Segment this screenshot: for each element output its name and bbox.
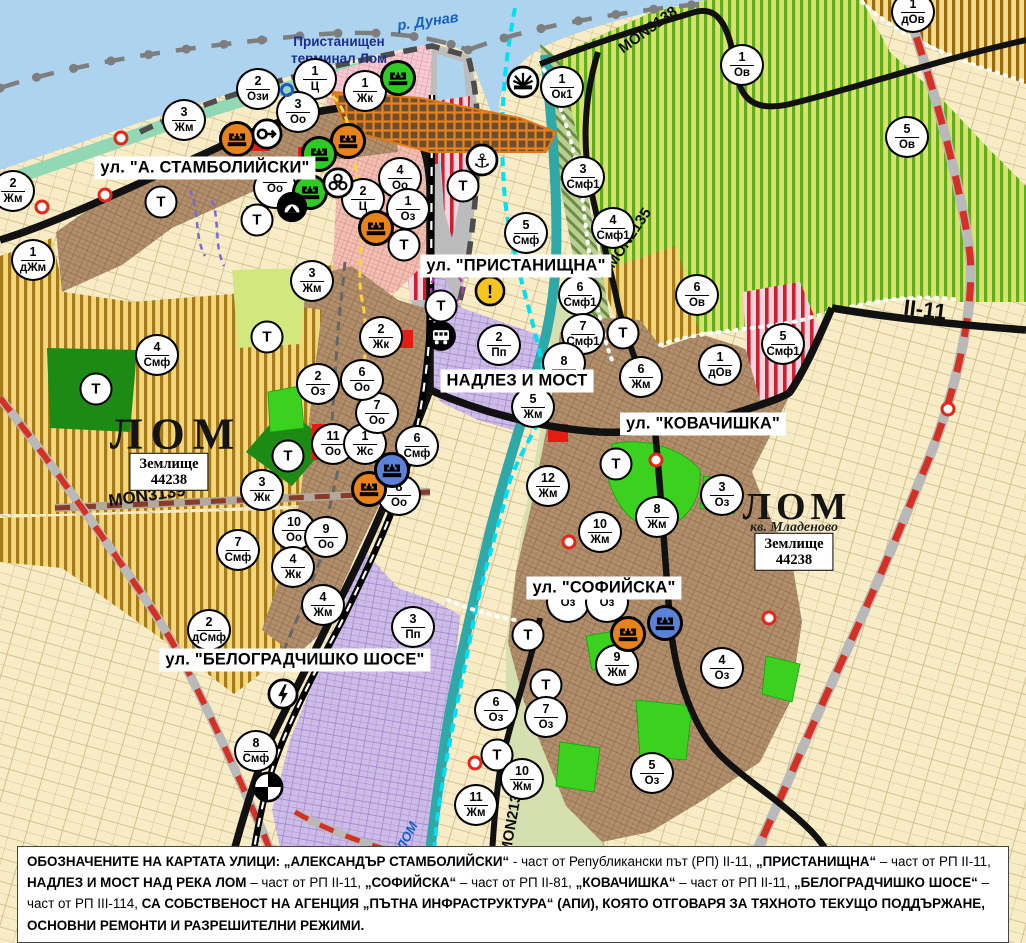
- zone-marker-number: 2: [315, 370, 322, 383]
- zone-marker-code: Ов: [689, 298, 705, 310]
- zone-marker: 2дСмф: [187, 609, 231, 651]
- zone-marker-divider: [387, 495, 411, 496]
- zone-marker-number: 7: [580, 320, 587, 333]
- red-dot-marker: [762, 611, 777, 626]
- zone-marker-divider: [300, 281, 324, 282]
- zone-marker-number: 8: [253, 737, 260, 750]
- zone-marker-divider: [306, 384, 330, 385]
- zone-marker-divider: [405, 446, 429, 447]
- zone-marker: 4Жм: [301, 584, 345, 626]
- zone-marker-code: Жк: [254, 493, 270, 505]
- terrain-marker: Т: [600, 448, 633, 481]
- zone-marker-divider: [464, 805, 488, 806]
- zone-marker-number: 11: [326, 430, 339, 443]
- zone-marker: 1Ов: [720, 44, 764, 86]
- zone-marker-divider: [350, 380, 374, 381]
- zone-marker-number: 3: [410, 613, 417, 626]
- zone-marker-divider: [571, 177, 595, 178]
- zone-marker-code: Ози: [247, 92, 269, 104]
- zone-marker-number: 7: [543, 703, 550, 716]
- zone-marker-number: 4: [154, 341, 161, 354]
- zone-marker: 5Смф: [504, 212, 548, 254]
- anchor-icon: ⚓: [465, 143, 499, 177]
- zone-marker-number: 6: [638, 363, 645, 376]
- power-station-icon: [267, 678, 299, 710]
- zone-marker-number: 1: [362, 77, 369, 90]
- zone-marker-divider: [484, 710, 508, 711]
- zone-marker-code: Смф: [513, 236, 540, 248]
- zone-marker-divider: [710, 495, 734, 496]
- zone-marker: 4Оз: [700, 647, 744, 689]
- zone-marker: 10Жм: [578, 511, 622, 553]
- zone-marker-code: Ц: [311, 82, 319, 94]
- legend-note-segment: „ПРИСТАНИЩНА“: [756, 854, 876, 869]
- zone-marker-code: Оо: [369, 416, 385, 428]
- zone-marker-number: 6: [493, 696, 500, 709]
- zone-marker-divider: [365, 413, 389, 414]
- zone-marker-divider: [286, 112, 310, 113]
- zone-marker: 3Пп: [391, 606, 435, 648]
- legend-note-segment: – част от РП II-81,: [456, 875, 575, 890]
- zone-marker: 6Смф1: [558, 274, 602, 316]
- zone-marker-code: Оо: [391, 498, 407, 510]
- zone-marker: 8Жм: [635, 496, 679, 538]
- street-label-stamboliyski: ул. "А. СТАМБОЛИЙСКИ": [94, 157, 315, 180]
- legend-note: ОБОЗНАЧЕНИТЕ НА КАРТАТА УЛИЦИ: „АЛЕКСАНД…: [17, 846, 1009, 943]
- zone-marker-divider: [1, 191, 25, 192]
- zone-marker-number: 5: [904, 123, 911, 136]
- zone-marker-code: Жм: [4, 194, 23, 206]
- terrain-marker: Т: [425, 290, 458, 323]
- zone-marker-number: 4: [610, 214, 617, 227]
- zone-marker-code: Оз: [311, 387, 326, 399]
- heritage-monument-icon: [647, 605, 684, 642]
- legend-note-segment: „СОФИЙСКА“: [365, 875, 456, 890]
- road-number-ii-11: II-11: [902, 294, 948, 325]
- zone-marker: 3Жм: [290, 260, 334, 302]
- zone-marker-divider: [21, 260, 45, 261]
- zone-marker-number: 5: [780, 330, 787, 343]
- zone-marker-divider: [710, 668, 734, 669]
- zone-marker-number: 11: [469, 791, 482, 804]
- port-terminal-line1: Пристанищен: [293, 34, 384, 49]
- zone-marker-code: Оз: [489, 713, 504, 725]
- landplot-box-west: Землище 44238: [129, 453, 208, 491]
- street-label-sofiyska: ул. "СОФИЙСКА": [526, 577, 681, 600]
- zone-marker-divider: [685, 295, 709, 296]
- terrain-marker: Т: [607, 317, 640, 350]
- zone-marker-number: 2: [206, 616, 213, 629]
- zone-marker-number: 1: [559, 73, 566, 86]
- zone-marker: 6Жм: [619, 356, 663, 398]
- zone-marker-code: Пп: [491, 348, 506, 360]
- zone-marker: 3Оз: [700, 474, 744, 516]
- zone-marker-code: Ов: [899, 140, 915, 152]
- zone-marker: 6Оз: [474, 689, 518, 731]
- trefoil-monument-icon: [322, 167, 354, 199]
- zone-marker-number: 2: [10, 177, 17, 190]
- zone-marker-code: Жм: [314, 608, 333, 620]
- zone-marker-code: Смф: [243, 754, 270, 766]
- zone-marker-number: 6: [414, 432, 421, 445]
- zone-marker: 7Смф: [216, 529, 260, 571]
- legend-note-segment: „БЕЛОГРАДЧИШКО ШОСЕ“: [794, 875, 978, 890]
- zone-marker-number: 5: [649, 759, 656, 772]
- zone-marker-number: 6: [359, 366, 366, 379]
- zone-marker-divider: [487, 345, 511, 346]
- zone-marker-number: 6: [694, 281, 701, 294]
- zone-marker-number: 3: [580, 163, 587, 176]
- zone-marker-number: 5: [530, 393, 537, 406]
- zone-marker-divider: [514, 233, 538, 234]
- zone-marker-number: 1: [717, 351, 724, 364]
- zone-marker-number: 3: [295, 98, 302, 111]
- red-dot-marker: [468, 756, 483, 771]
- zone-marker: 5Смф1: [761, 323, 805, 365]
- zone-marker-number: 3: [719, 481, 726, 494]
- zone-marker-divider: [771, 344, 795, 345]
- zone-marker-divider: [172, 120, 196, 121]
- zone-marker-divider: [311, 605, 335, 606]
- zone-marker: 11Жм: [454, 784, 498, 826]
- zone-marker: 6Ов: [675, 274, 719, 316]
- landplot-code: 44238: [776, 552, 812, 568]
- zone-marker-code: Смф1: [563, 298, 596, 310]
- legend-note-segment: НАДЛЕЗ И МОСТ НАД РЕКА ЛОМ: [27, 875, 246, 890]
- tunnel-icon: [276, 191, 308, 223]
- heritage-monument-icon: [374, 452, 411, 489]
- zone-marker-divider: [369, 337, 393, 338]
- zone-marker-code: Смф: [225, 553, 252, 565]
- zone-marker-divider: [244, 751, 268, 752]
- zone-marker-divider: [246, 89, 270, 90]
- legend-note-segment: – част от РП II-11,: [676, 875, 794, 890]
- zone-marker-code: Жм: [539, 489, 558, 501]
- zone-marker-divider: [601, 228, 625, 229]
- zone-marker: 4Смф: [135, 334, 179, 376]
- zone-marker-code: Оз: [401, 212, 416, 224]
- zone-marker-divider: [353, 91, 377, 92]
- zone-marker-number: 10: [287, 516, 301, 529]
- zone-marker-number: 9: [614, 651, 621, 664]
- zone-marker-divider: [197, 630, 221, 631]
- legend-note-segment: „КОВАЧИШКА“: [576, 875, 676, 890]
- zone-marker-number: 1: [312, 65, 319, 78]
- red-dot-marker: [98, 188, 113, 203]
- zone-marker-code: Жс: [357, 447, 374, 459]
- zone-marker-divider: [388, 178, 412, 179]
- zone-marker-code: Жк: [285, 570, 301, 582]
- zone-marker-number: 7: [235, 536, 242, 549]
- zone-marker-divider: [396, 209, 420, 210]
- street-label-belogradchishko-shose: ул. "БЕЛОГРАДЧИШКО ШОСЕ": [159, 649, 430, 672]
- zone-marker-code: Жк: [357, 94, 373, 106]
- zoning-map: р. Дунав Пристанищен терминал Лом ЛОМ Зе…: [0, 0, 1026, 943]
- zone-marker-divider: [645, 517, 669, 518]
- zone-marker: 5Ов: [885, 116, 929, 158]
- landplot-code: 44238: [151, 472, 187, 488]
- zone-marker: 1дОв: [698, 344, 742, 386]
- zone-marker: 3Жк: [240, 469, 284, 511]
- zone-marker-code: дОв: [901, 15, 924, 27]
- zone-marker-divider: [640, 773, 664, 774]
- zone-marker: 2Ози: [236, 68, 280, 110]
- zone-marker-number: 2: [255, 75, 262, 88]
- zone-marker: 10Жм: [500, 758, 544, 800]
- terrain-marker: Т: [512, 619, 545, 652]
- zone-marker-code: Ов: [734, 68, 750, 80]
- zone-marker-divider: [281, 567, 305, 568]
- zone-marker-divider: [730, 65, 754, 66]
- heritage-monument-icon: [358, 210, 395, 247]
- zone-marker-code: Пп: [405, 630, 420, 642]
- heritage-monument-icon: [380, 60, 417, 97]
- zone-marker-code: Смф1: [566, 180, 599, 192]
- zone-marker-code: Смф1: [766, 347, 799, 359]
- terrain-marker: Т: [241, 204, 274, 237]
- zone-marker-code: Смф1: [596, 231, 629, 243]
- zone-marker-divider: [282, 530, 306, 531]
- zone-marker: 3Смф1: [561, 156, 605, 198]
- zone-marker-divider: [303, 79, 327, 80]
- zone-marker-divider: [901, 12, 925, 13]
- zone-marker-code: Жм: [524, 410, 543, 422]
- zone-marker-divider: [895, 137, 919, 138]
- terrain-marker: Т: [80, 373, 113, 406]
- zone-marker-number: 1: [739, 51, 746, 64]
- zone-marker-divider: [534, 717, 558, 718]
- zone-marker-divider: [568, 295, 592, 296]
- zone-marker-code: Жм: [591, 535, 610, 547]
- zone-marker-code: дОв: [708, 368, 731, 380]
- zone-marker-divider: [351, 199, 375, 200]
- zone-marker: 3Жм: [162, 99, 206, 141]
- zone-marker-number: 2: [360, 185, 367, 198]
- zone-marker-code: Жм: [608, 668, 627, 680]
- zone-marker: 6Оо: [340, 359, 384, 401]
- heritage-monument-icon: [610, 616, 647, 653]
- zone-marker: 12Жм: [526, 465, 570, 507]
- terrain-marker: Т: [251, 321, 284, 354]
- zone-marker-code: Оз: [561, 598, 576, 610]
- blue-ring-icon: [279, 82, 295, 98]
- zone-marker-divider: [571, 334, 595, 335]
- zone-marker: 8Смф: [234, 730, 278, 772]
- landplot-box-east: Землище 44238: [754, 533, 833, 571]
- zone-marker-number: 3: [259, 476, 266, 489]
- zone-marker: 7Оз: [524, 696, 568, 738]
- zone-marker-code: дЖм: [20, 263, 46, 275]
- zone-marker-number: 8: [561, 355, 568, 368]
- zone-marker-divider: [145, 355, 169, 356]
- zone-marker: 4Жк: [271, 546, 315, 588]
- zone-marker-code: дСмф: [192, 633, 226, 645]
- landplot-label: Землище: [139, 456, 198, 472]
- zone-marker-code: Жм: [175, 123, 194, 135]
- zone-marker-divider: [588, 532, 612, 533]
- red-dot-marker: [562, 535, 577, 550]
- zone-marker-number: 12: [541, 472, 555, 485]
- legend-note-segment: - част от Републикански път (РП) II-11,: [509, 854, 756, 869]
- zone-marker-divider: [353, 444, 377, 445]
- zone-marker-number: 7: [374, 399, 381, 412]
- zone-marker-number: 10: [515, 765, 529, 778]
- zone-marker-number: 10: [593, 518, 607, 531]
- zone-marker-divider: [550, 87, 574, 88]
- zone-marker-code: Оо: [318, 540, 334, 552]
- zone-marker-number: 5: [523, 219, 530, 232]
- zone-marker-number: 2: [378, 323, 385, 336]
- zone-marker-divider: [314, 537, 338, 538]
- zone-marker: 9Оо: [304, 516, 348, 558]
- zone-marker-code: Оо: [325, 447, 341, 459]
- zone-marker: 2Жк: [359, 316, 403, 358]
- zone-marker-code: Жк: [373, 340, 389, 352]
- zone-marker-number: 4: [320, 591, 327, 604]
- zone-marker-code: Жм: [467, 808, 486, 820]
- zone-marker-code: Ок1: [551, 90, 572, 102]
- street-label-kovachishka: ул. "КОВАЧИШКА": [620, 413, 786, 436]
- zone-marker-code: Оо: [354, 383, 370, 395]
- zone-marker: 4Смф1: [591, 207, 635, 249]
- zone-marker-divider: [605, 665, 629, 666]
- red-dot-marker: [114, 131, 129, 146]
- street-label-nadlez-i-most: НАДЛЕЗ И МОСТ: [441, 370, 594, 393]
- zone-marker-divider: [629, 377, 653, 378]
- zone-marker-divider: [536, 486, 560, 487]
- legend-note-segment: СА СОБСТВЕНОСТ НА АГЕНЦИЯ „ПЪТНА ИНФРАСТ…: [27, 896, 985, 932]
- zone-marker-code: Жм: [513, 782, 532, 794]
- bus-station-icon: [425, 320, 457, 352]
- zone-marker-code: Жм: [632, 380, 651, 392]
- railway-crossing-icon: [252, 771, 284, 803]
- zone-marker-code: Оз: [645, 776, 660, 788]
- zone-marker-number: 4: [397, 164, 404, 177]
- terrain-marker: Т: [145, 186, 178, 219]
- zone-marker-code: Смф: [144, 358, 171, 370]
- beacon-icon: [506, 65, 540, 99]
- legend-note-segment: – част от РП II-11,: [876, 854, 991, 869]
- zone-marker-number: 3: [181, 106, 188, 119]
- legend-note-segment: ОБОЗНАЧЕНИТЕ НА КАРТАТА УЛИЦИ: „АЛЕКСАНД…: [27, 854, 509, 869]
- street-label-pristanishtna: ул. "ПРИСТАНИЩНА": [420, 255, 611, 278]
- zone-marker-code: Жм: [303, 284, 322, 296]
- zone-marker: 1Ок1: [540, 66, 584, 108]
- zone-marker-divider: [226, 550, 250, 551]
- zone-marker-divider: [321, 444, 345, 445]
- zone-marker-number: 8: [654, 503, 661, 516]
- zone-marker-number: 1: [910, 0, 917, 11]
- zone-marker-code: Оо: [286, 533, 302, 545]
- zone-marker-code: Оз: [600, 598, 615, 610]
- zone-marker: 5Оз: [630, 752, 674, 794]
- zone-marker-number: 1: [30, 246, 37, 259]
- terrain-marker: Т: [272, 440, 305, 473]
- zone-marker: 2Оз: [296, 363, 340, 405]
- zone-marker-number: 3: [309, 267, 316, 280]
- zone-marker-number: 9: [323, 523, 330, 536]
- zone-marker-divider: [250, 490, 274, 491]
- zone-marker-number: 1: [405, 195, 412, 208]
- zone-marker: 2Пп: [477, 324, 521, 366]
- red-dot-marker: [941, 402, 956, 417]
- landplot-label: Землище: [764, 536, 823, 552]
- warning-icon: !: [474, 275, 506, 307]
- zone-marker-divider: [401, 627, 425, 628]
- key-monument-icon: [251, 118, 283, 150]
- zone-marker-code: Жм: [648, 520, 667, 532]
- zone-marker-number: 4: [719, 654, 726, 667]
- svg-text:⚓: ⚓: [473, 149, 490, 172]
- zone-marker-code: Оо: [290, 115, 306, 127]
- zone-marker-number: 2: [496, 331, 503, 344]
- legend-note-segment: – част от РП II-11,: [246, 875, 364, 890]
- red-dot-marker: [35, 200, 50, 215]
- zone-marker-number: 6: [577, 281, 584, 294]
- zone-marker-divider: [708, 365, 732, 366]
- svg-text:!: !: [487, 282, 493, 302]
- zone-marker-divider: [510, 779, 534, 780]
- red-dot-marker: [649, 453, 664, 468]
- zone-marker: 1дЖм: [11, 239, 55, 281]
- zone-marker-code: Оз: [715, 671, 730, 683]
- zone-marker-number: 4: [290, 553, 297, 566]
- zone-marker-divider: [521, 407, 545, 408]
- heritage-monument-icon: [219, 121, 256, 158]
- zone-marker-code: Оз: [539, 720, 554, 732]
- zone-marker-code: Оз: [715, 498, 730, 510]
